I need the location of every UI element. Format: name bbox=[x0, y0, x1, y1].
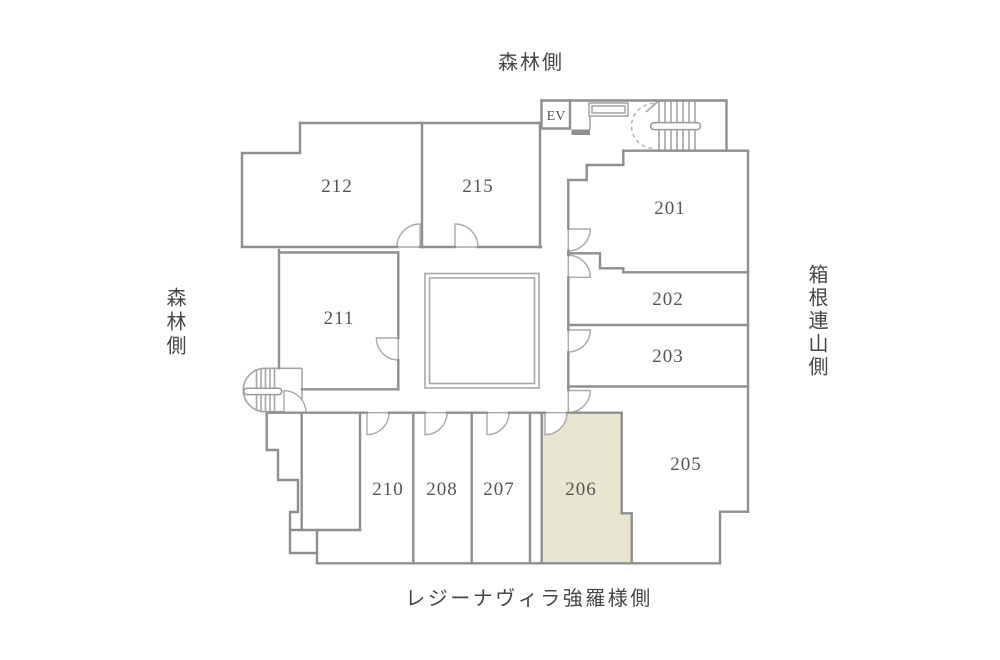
floor-plan-page: 森林側 森林側 箱根連山側 レジーナヴィラ強羅様側 bbox=[0, 0, 1000, 660]
room-label-212[interactable]: 212 bbox=[321, 176, 353, 197]
room-label-208[interactable]: 208 bbox=[426, 479, 458, 500]
room-label-201[interactable]: 201 bbox=[654, 198, 686, 219]
room-label-207[interactable]: 207 bbox=[483, 479, 515, 500]
staircase-northeast bbox=[632, 101, 701, 151]
door-swing-211 bbox=[376, 338, 398, 360]
floor-plan-svg: EV bbox=[0, 0, 1000, 660]
stair-handrail bbox=[244, 388, 282, 394]
room-label-215[interactable]: 215 bbox=[462, 176, 494, 197]
door-swing-212 bbox=[397, 224, 420, 247]
courtyard-shaft bbox=[425, 274, 539, 389]
stair-break-line bbox=[646, 101, 659, 113]
door-swing-203 bbox=[568, 330, 590, 352]
door-swings bbox=[284, 224, 590, 435]
door-swing-210 bbox=[367, 413, 389, 435]
stair-handrail bbox=[651, 123, 701, 130]
room-label-211[interactable]: 211 bbox=[324, 308, 355, 329]
room-label-202[interactable]: 202 bbox=[652, 289, 684, 310]
door-swing-205 bbox=[568, 391, 590, 413]
door-swing-215 bbox=[455, 224, 478, 247]
elevator-label: EV bbox=[547, 109, 566, 124]
elevator: EV bbox=[542, 101, 629, 136]
door-swing-201 bbox=[568, 229, 590, 251]
door-swing-207 bbox=[487, 413, 509, 435]
room-label-206[interactable]: 206 bbox=[565, 479, 597, 500]
room-label-210[interactable]: 210 bbox=[372, 479, 404, 500]
room-label-203[interactable]: 203 bbox=[652, 346, 684, 367]
elevator-door-sill bbox=[572, 130, 591, 136]
room-label-205[interactable]: 205 bbox=[670, 454, 702, 475]
door-swing-202 bbox=[568, 255, 590, 277]
door-swing-208 bbox=[425, 413, 447, 435]
